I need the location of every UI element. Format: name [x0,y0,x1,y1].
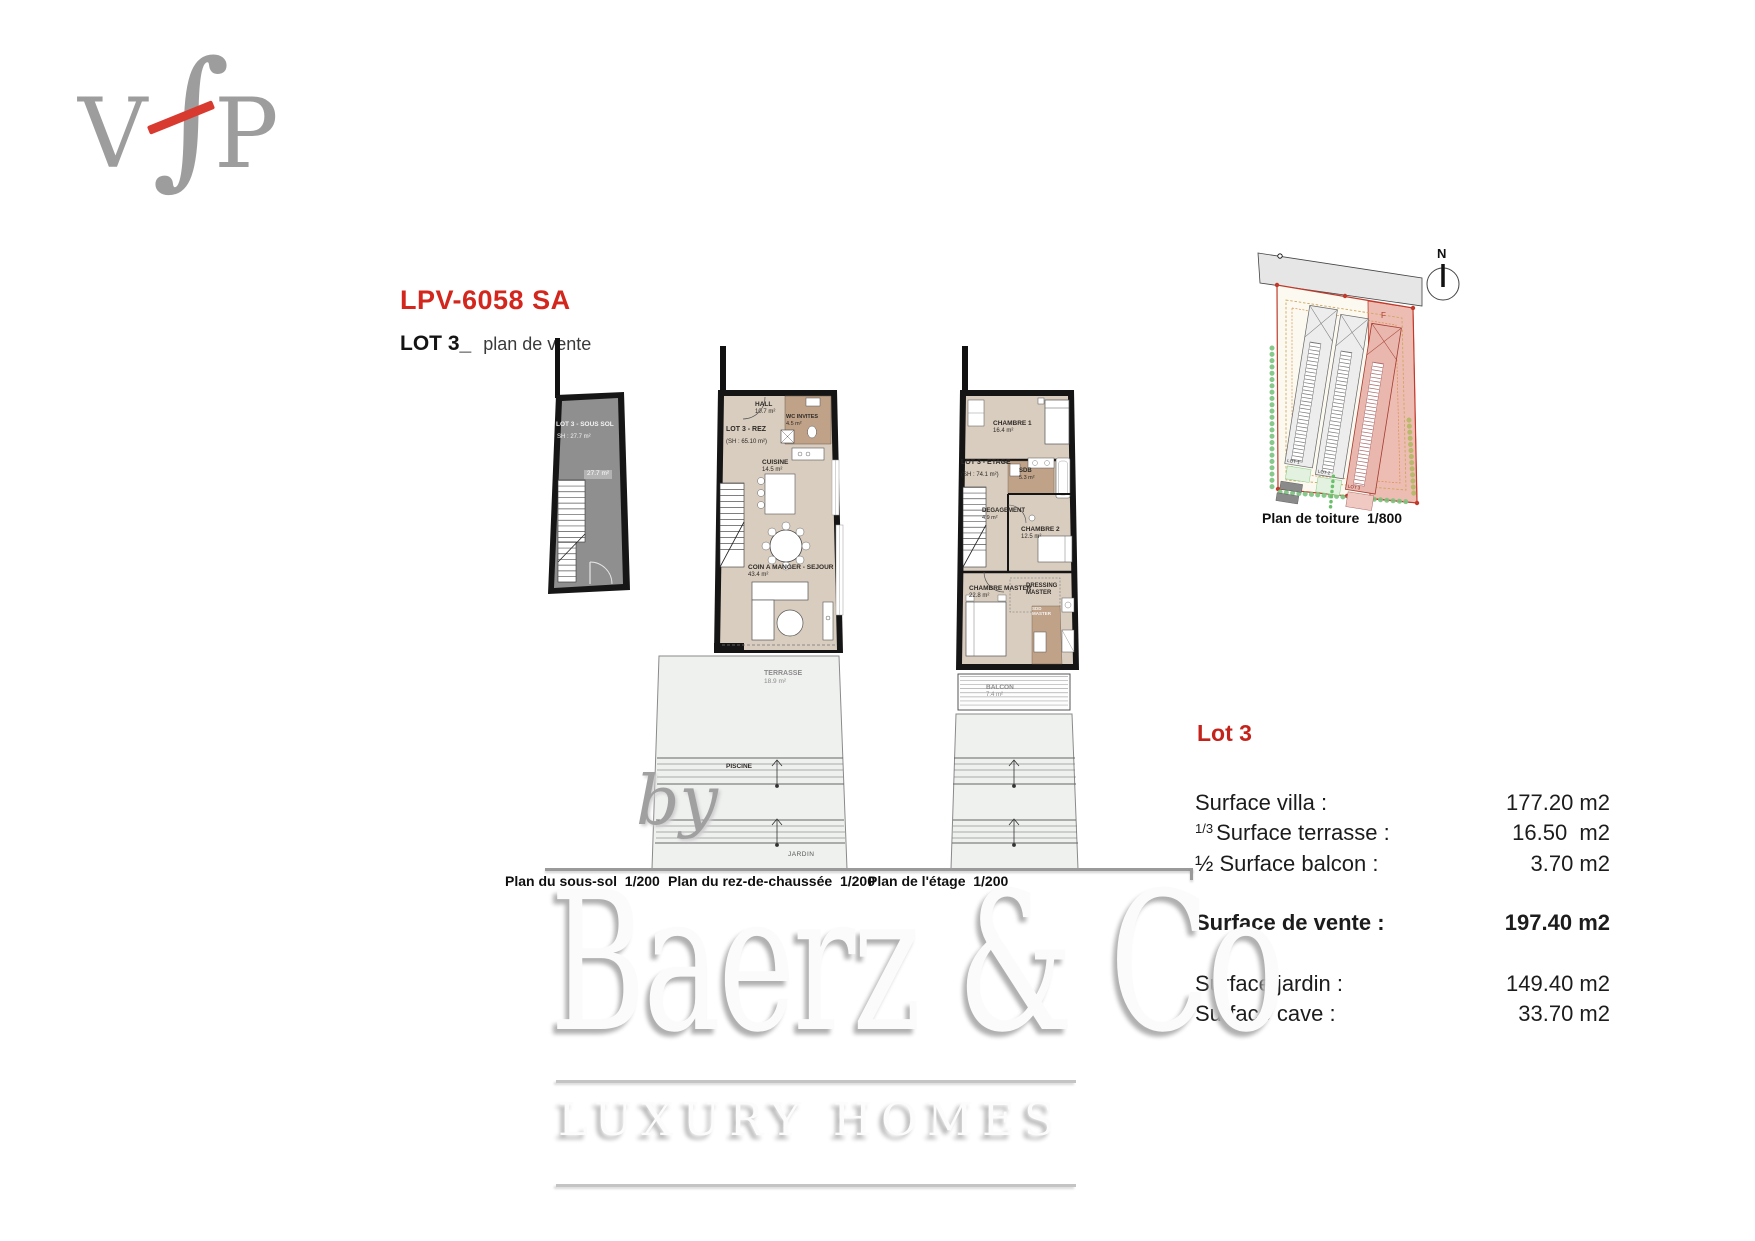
logo-letter-p: P [214,86,279,182]
bedroom1-label: CHAMBRE 1 16.4 m² [993,420,1032,435]
watermark-tagline: LUXURY HOMES [558,1097,1064,1142]
master-bed-icon [966,595,1006,656]
compass-n-label: N [1437,246,1446,261]
tv-unit [823,602,833,640]
balcony-label: BALCON 7.4 m² [986,684,1014,699]
balcony [958,674,1070,710]
hallway-label: DEGAGEMENT 4.9 m² [982,508,1025,522]
bedroom2-label: CHAMBRE 2 12.5 m² [1021,526,1060,541]
upper-lot-label: LOT 3 - ETAGE [961,459,1011,467]
wall-stub [720,346,726,392]
surface-value: 197.40 m2 [1505,910,1610,936]
terrace-label: TERRASSE 18.9 m² [764,670,802,686]
logo-letter-v: V [78,86,147,182]
hall-label: HALL 10.7 m² [755,401,775,416]
ground-lot-label: LOT 3 - REZ [726,426,766,434]
watermark-by: by [636,768,718,836]
upper-sh-label: (SH : 74.1 m²) [961,472,999,479]
watermark-rule-bottom [556,1184,1076,1187]
wall-stub [555,338,560,398]
kitchen-island-icon [758,474,796,514]
roof-plan: LOT 1 LOT 2 LOT 3 F N [1250,240,1465,520]
lot-number: LOT 3_ [400,332,471,355]
living-label: COIN A MANGER - SEJOUR 43.4 m² [748,564,833,579]
surface-value: 177.20 m2 [1506,790,1610,816]
wc-label: WC INVITES 4.5 m² [786,414,818,427]
roof-plan-caption: Plan de toiture 1/800 [1262,510,1402,526]
ground-sh-label: (SH : 65.10 m²) [726,439,767,446]
master-label: CHAMBRE MASTER 22.8 m² [969,585,1031,600]
surface-value: 149.40 m2 [1506,971,1610,997]
plan-de-vente-page: V ∫ P LPV-6058 SA LOT 3_plan de vente LO… [0,0,1755,1241]
shower-label: SDD MASTER [1032,606,1051,617]
fraction-prefix: 1/3 [1195,821,1213,836]
dining-table-icon [762,522,810,570]
wall-stub [962,346,968,392]
kitchen-counter [792,448,824,460]
compass-icon: N [1427,246,1459,300]
pool-label: PISCINE [726,763,752,771]
stairs-icon [963,487,986,567]
bath-label: SDB 5.3 m² [1019,468,1035,482]
watermark-brand: Baerz & Co [550,868,1283,1060]
survey-marker [1278,254,1282,258]
watermark-rule-top [556,1080,1076,1083]
bottom-wall-chunk [714,643,744,653]
surfaces-title: Lot 3 [1197,720,1252,747]
surface-value: 33.70 m2 [1518,1001,1610,1027]
surface-label: Surface villa : [1195,790,1327,816]
page-title: LPV-6058 SA [400,285,571,316]
basement-room-label: LOT 3 - SOUS SOL [556,421,614,429]
surface-row-terrasse: 1/3Surface terrasse : 16.50 m2 [1195,820,1610,846]
surface-label: 1/3Surface terrasse : [1195,820,1390,846]
parcel-f-label: F [1381,311,1386,320]
surface-value: 16.50 m2 [1512,820,1610,846]
stairs-icon [720,483,744,567]
dressing-label: DRESSING MASTER [1026,583,1057,597]
kitchen-label: CUISINE 14.5 m² [762,459,788,474]
basement-area-tag: 27.7 m² [584,470,612,479]
basement-sh-label: SH : 27.7 m² [557,434,591,441]
surface-row-villa: Surface villa : 177.20 m2 [1195,790,1610,816]
surface-value: 3.70 m2 [1531,851,1611,877]
